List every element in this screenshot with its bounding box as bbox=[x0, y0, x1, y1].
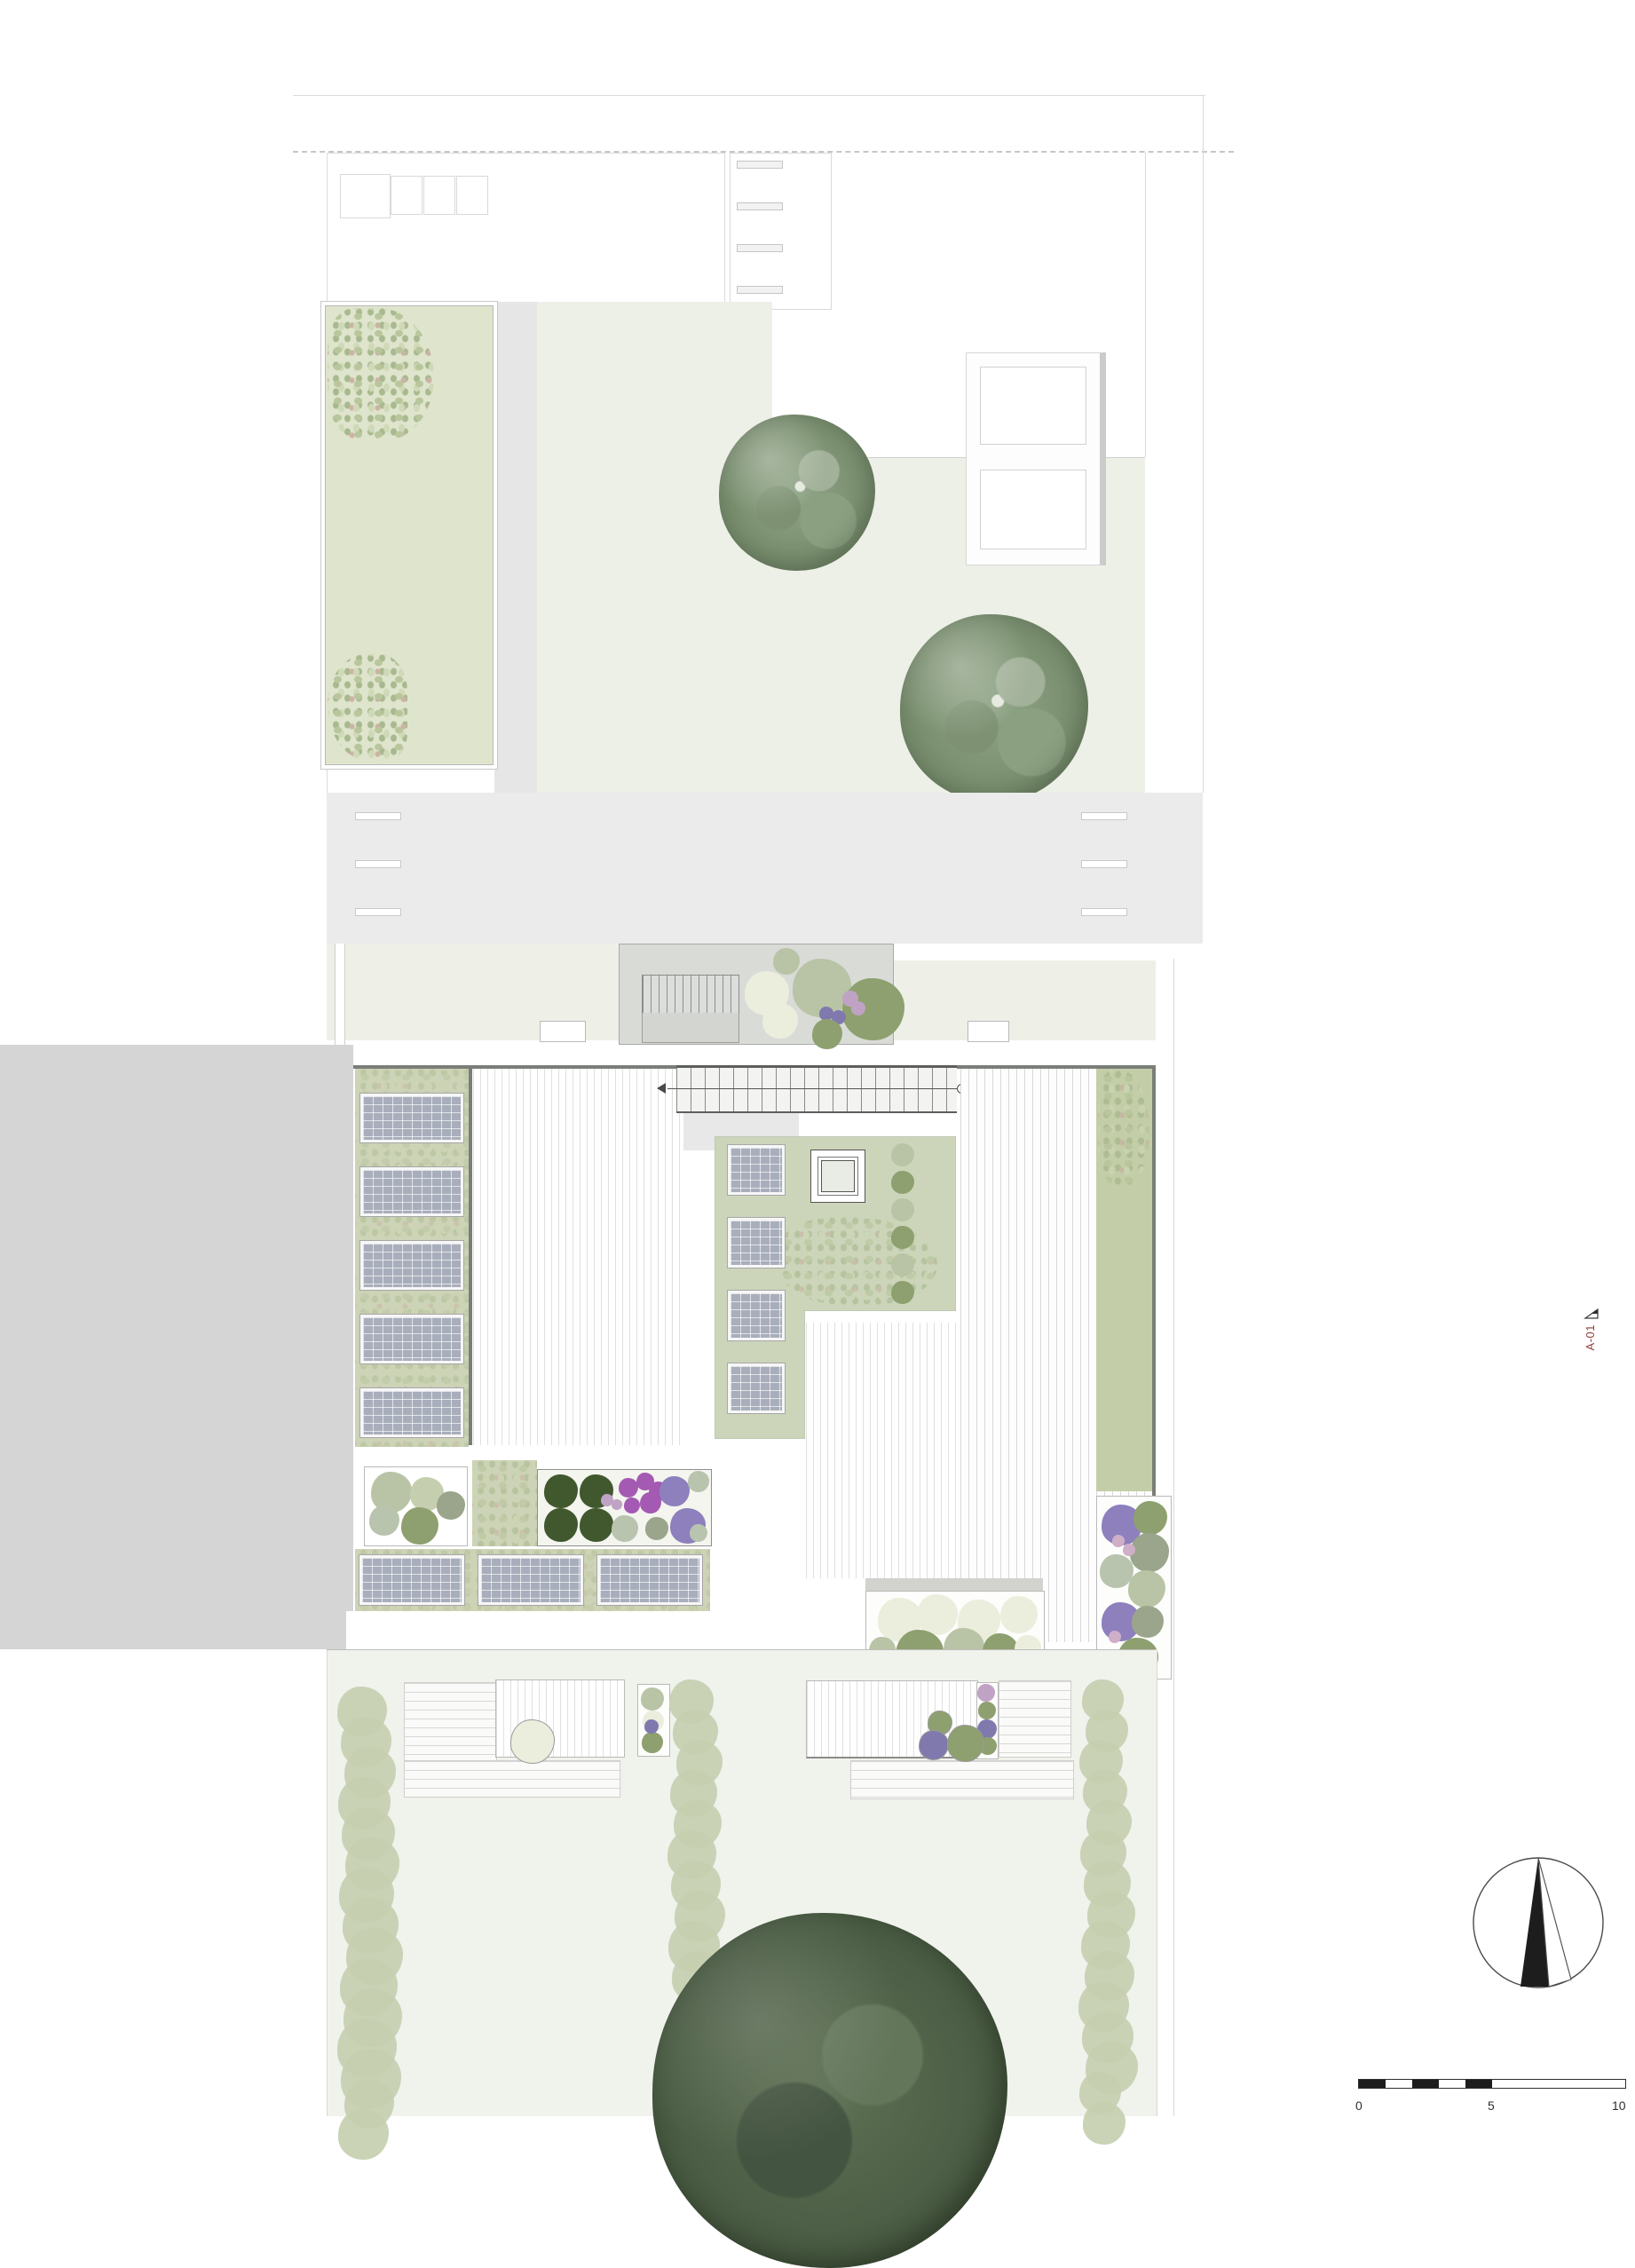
lawn-left bbox=[537, 302, 772, 793]
plant-blob bbox=[1132, 1606, 1164, 1638]
access-road bbox=[327, 793, 1203, 944]
planter-colorful-plants bbox=[537, 1469, 710, 1545]
entrance-door-right bbox=[968, 1021, 1009, 1042]
skylight-glass bbox=[821, 1160, 855, 1192]
garden-terrace-east bbox=[999, 1680, 1071, 1758]
lane-mark bbox=[355, 908, 401, 916]
plant-blob bbox=[773, 948, 800, 975]
site-right-vline bbox=[1203, 95, 1204, 793]
plant-blob bbox=[612, 1515, 638, 1542]
tree-large-south bbox=[652, 1913, 1007, 2268]
plant-blob bbox=[977, 1684, 995, 1702]
context-structure bbox=[966, 352, 1106, 565]
context-structure-lower bbox=[980, 470, 1086, 549]
hedge-shrub bbox=[338, 2109, 389, 2160]
tree-large-2 bbox=[900, 614, 1088, 802]
plant-blob bbox=[688, 1471, 709, 1492]
planter-west-plants bbox=[364, 1466, 466, 1545]
context-roofline bbox=[293, 95, 1205, 96]
section-marker-label: A-01 bbox=[1584, 1324, 1597, 1350]
plant-blob bbox=[690, 1524, 707, 1542]
solar-panel bbox=[728, 1291, 785, 1340]
scale-label-0: 0 bbox=[1355, 2098, 1362, 2113]
scale-seg bbox=[1465, 2080, 1492, 2088]
plant-blob bbox=[1128, 1570, 1165, 1608]
roof-walkway-bridge bbox=[676, 1065, 957, 1113]
scale-seg bbox=[1492, 2080, 1625, 2088]
planter-south-gray-band bbox=[865, 1578, 1043, 1591]
rooflight bbox=[340, 174, 391, 218]
green-strip-foliage bbox=[1098, 1071, 1149, 1186]
plant-blob bbox=[917, 1594, 958, 1635]
north-arrow-icon bbox=[1469, 1852, 1611, 1994]
scale-seg bbox=[1359, 2080, 1386, 2088]
section-cut-line bbox=[667, 1088, 960, 1089]
deck-center-south bbox=[806, 1323, 957, 1578]
site-plan-canvas: A-01 0 5 10 bbox=[0, 0, 1635, 2116]
sill-mark bbox=[737, 286, 783, 294]
plot-foliage-top bbox=[328, 308, 434, 441]
scale-seg bbox=[1386, 2080, 1412, 2088]
plant-blob bbox=[978, 1702, 996, 1719]
plant-blob bbox=[1133, 1501, 1167, 1535]
plant-blob bbox=[624, 1498, 640, 1513]
neighbor-building-west bbox=[0, 1045, 353, 1649]
context-structure-upper bbox=[980, 367, 1086, 445]
rooflight bbox=[423, 176, 455, 215]
rooflight bbox=[391, 176, 423, 215]
sill-mark bbox=[737, 244, 783, 252]
solar-panel bbox=[597, 1555, 702, 1605]
deck-west bbox=[473, 1069, 685, 1445]
entrance-planting bbox=[738, 944, 893, 1044]
east-context-vline bbox=[1173, 959, 1174, 2116]
scale-seg bbox=[1439, 2080, 1465, 2088]
entrance-white-band bbox=[892, 944, 1156, 960]
planter-connector bbox=[472, 1460, 537, 1546]
terrace-south-west bbox=[346, 1611, 799, 1650]
scale-label-10: 10 bbox=[1612, 2098, 1626, 2113]
lane-mark bbox=[1081, 812, 1127, 820]
solar-panel bbox=[728, 1145, 785, 1195]
plant-blob bbox=[612, 1499, 622, 1510]
garden-plot bbox=[325, 305, 494, 765]
west-wall-line bbox=[335, 944, 345, 1045]
garden-top-line bbox=[327, 1649, 1156, 1650]
solar-panel bbox=[728, 1363, 785, 1413]
plant-blob bbox=[619, 1478, 638, 1498]
scale-label-5: 5 bbox=[1488, 2098, 1495, 2113]
plant-blob bbox=[640, 1492, 661, 1513]
plant-blob bbox=[580, 1508, 613, 1542]
entrance-door-left bbox=[540, 1021, 586, 1042]
garden-terrace-west-upper bbox=[404, 1682, 497, 1762]
solar-panel bbox=[360, 1241, 463, 1290]
plant-blob bbox=[762, 1003, 798, 1039]
section-marker-triangle-icon bbox=[657, 1083, 666, 1094]
plant-blob bbox=[401, 1507, 438, 1545]
plant-blob bbox=[641, 1687, 664, 1711]
neighbor-right-vline bbox=[1145, 153, 1146, 457]
solar-panel bbox=[360, 1388, 463, 1437]
garden-terrace-west-lower bbox=[404, 1760, 620, 1798]
plant-blob bbox=[437, 1491, 465, 1520]
sill-mark bbox=[737, 161, 783, 169]
solar-panel bbox=[360, 1167, 463, 1216]
garden-terrace-east-wide bbox=[850, 1760, 1074, 1799]
roof-edge-right bbox=[1152, 1065, 1156, 1496]
green-strip-east bbox=[1096, 1069, 1152, 1491]
solar-panel bbox=[360, 1315, 463, 1363]
plant-blob bbox=[1112, 1535, 1125, 1547]
plant-blob bbox=[1130, 1533, 1169, 1572]
solar-panel bbox=[360, 1094, 463, 1142]
garden-planter-small-1-plants bbox=[637, 1684, 668, 1755]
plant-blob bbox=[544, 1508, 578, 1542]
skylight-frame bbox=[810, 1150, 865, 1203]
scale-bar bbox=[1358, 2079, 1626, 2089]
connector-foliage bbox=[472, 1460, 537, 1546]
sill-mark bbox=[737, 202, 783, 210]
plant-blob bbox=[644, 1719, 659, 1734]
lane-mark bbox=[355, 860, 401, 868]
plant-blob bbox=[544, 1474, 578, 1508]
solar-panel bbox=[478, 1555, 583, 1605]
entrance-landing bbox=[642, 1013, 739, 1043]
plant-blob bbox=[1123, 1544, 1135, 1556]
scale-seg bbox=[1412, 2080, 1439, 2088]
section-arrow-icon bbox=[1584, 1307, 1599, 1321]
plant-blob bbox=[812, 1019, 842, 1049]
plant-blob bbox=[645, 1517, 668, 1540]
plot-foliage-bottom bbox=[328, 654, 407, 761]
plant-blob bbox=[1109, 1631, 1121, 1643]
roof-divider-line bbox=[469, 1069, 472, 1445]
entrance-block bbox=[619, 944, 894, 1045]
lane-mark bbox=[1081, 860, 1127, 868]
hedge-shrub bbox=[1083, 2102, 1126, 2145]
lane-mark bbox=[1081, 908, 1127, 916]
lane-mark bbox=[355, 812, 401, 820]
entrance-stairs bbox=[642, 975, 739, 1015]
solar-panel bbox=[359, 1555, 464, 1605]
tree-large-1 bbox=[719, 415, 875, 571]
path-strip bbox=[494, 302, 537, 793]
solar-panel bbox=[728, 1218, 785, 1268]
plant-blob bbox=[642, 1732, 663, 1753]
plant-blob bbox=[369, 1505, 399, 1536]
plant-blob bbox=[1000, 1596, 1038, 1633]
plant-blob bbox=[660, 1476, 690, 1506]
rooflight bbox=[456, 176, 488, 215]
